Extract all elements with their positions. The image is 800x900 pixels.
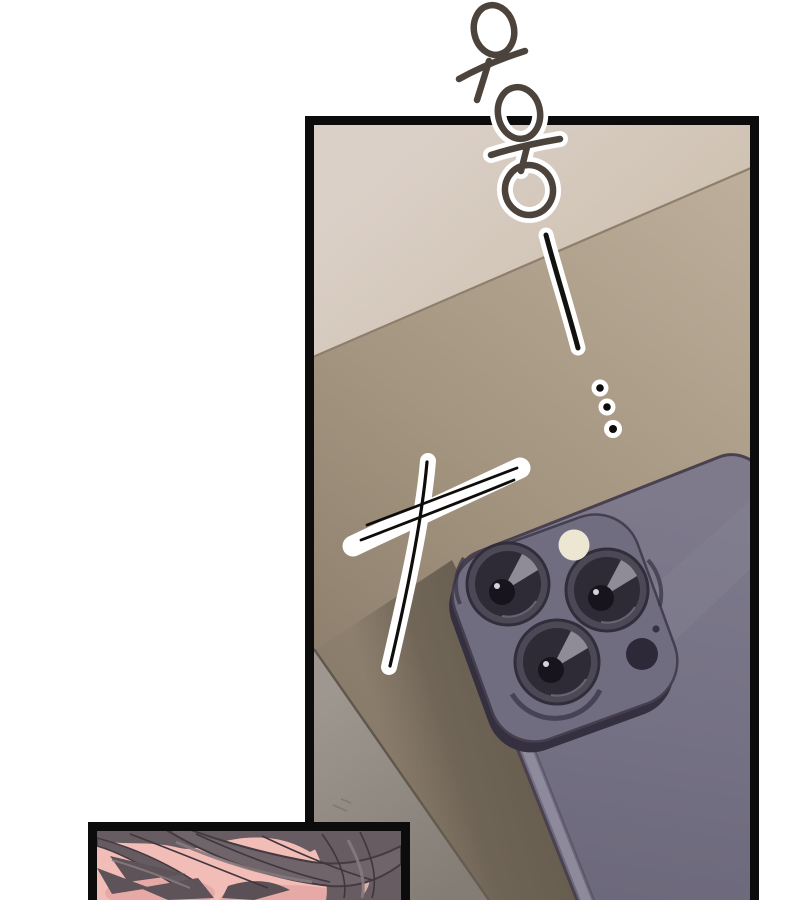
mic-dot-icon — [652, 625, 659, 632]
flash-icon — [559, 530, 590, 561]
webtoon-page: Webtoon page: a black-bordered panel of … — [0, 0, 800, 900]
comic-artwork: Webtoon page: a black-bordered panel of … — [0, 0, 800, 900]
lens-glint — [543, 661, 549, 667]
camera-lens-top-right — [566, 549, 648, 631]
camera-lens-top-left — [467, 543, 549, 625]
lidar-sensor-icon — [626, 638, 658, 670]
main-panel-content: Phone buzzing on desk — [313, 125, 800, 900]
camera-lens-bottom — [515, 620, 599, 704]
bottom-panel-content: Hair close-up — [97, 828, 401, 900]
lens-glint — [494, 583, 500, 589]
lens-glint — [593, 589, 599, 595]
